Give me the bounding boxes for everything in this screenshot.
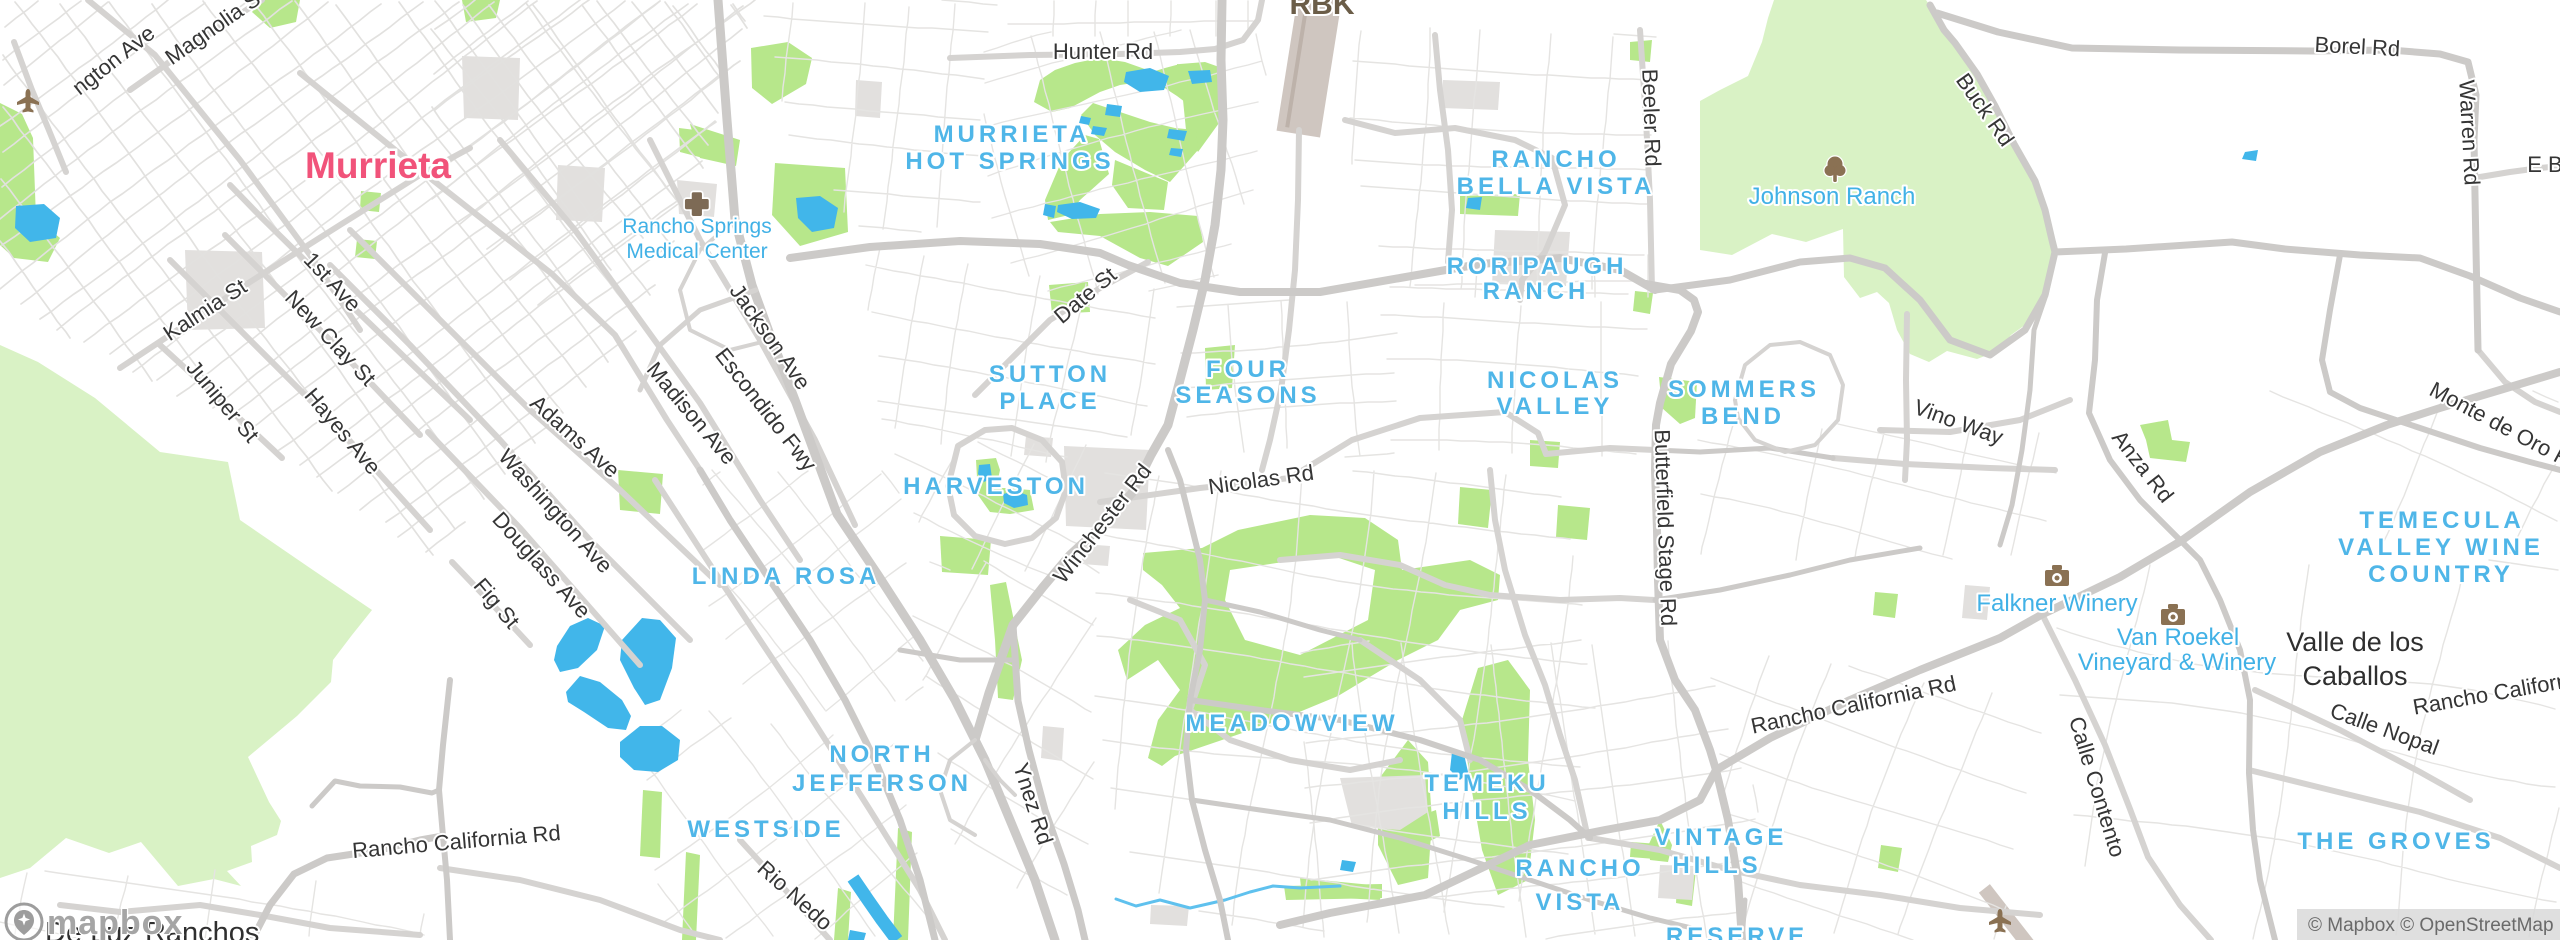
svg-text:TEMEKU: TEMEKU	[1424, 770, 1549, 797]
svg-text:VALLEY: VALLEY	[1497, 393, 1614, 420]
svg-text:SUTTON: SUTTON	[989, 361, 1111, 388]
svg-text:RANCHO: RANCHO	[1491, 146, 1620, 173]
svg-text:RANCHO: RANCHO	[1515, 855, 1644, 882]
svg-text:VALLEY WINE: VALLEY WINE	[2338, 534, 2544, 561]
svg-text:MURRIETA: MURRIETA	[934, 121, 1091, 148]
svg-text:NORTH: NORTH	[829, 741, 934, 768]
svg-text:SOMMERS: SOMMERS	[1668, 376, 1820, 403]
svg-text:HILLS: HILLS	[1442, 798, 1531, 825]
svg-text:Beeler Rd: Beeler Rd	[1637, 68, 1665, 167]
svg-text:Johnson Ranch: Johnson Ranch	[1749, 183, 1916, 210]
svg-text:Borel Rd: Borel Rd	[2314, 32, 2401, 61]
svg-text:NICOLAS: NICOLAS	[1487, 367, 1623, 394]
svg-text:THE GROVES: THE GROVES	[2297, 828, 2494, 855]
svg-text:BELLA VISTA: BELLA VISTA	[1457, 173, 1656, 200]
svg-text:COUNTRY: COUNTRY	[2368, 561, 2514, 588]
svg-text:Valle de los: Valle de los	[2286, 627, 2424, 657]
svg-text:PLACE: PLACE	[999, 388, 1100, 415]
svg-text:HOT SPRINGS: HOT SPRINGS	[905, 148, 1114, 175]
svg-text:JEFFERSON: JEFFERSON	[792, 770, 972, 797]
svg-text:VISTA: VISTA	[1536, 889, 1625, 916]
svg-text:© Mapbox © OpenStreetMap: © Mapbox © OpenStreetMap	[2308, 915, 2554, 936]
svg-text:TEMECULA: TEMECULA	[2359, 507, 2524, 534]
svg-text:SEASONS: SEASONS	[1175, 382, 1320, 409]
svg-text:HILLS: HILLS	[1672, 852, 1761, 879]
svg-text:Hunter Rd: Hunter Rd	[1053, 39, 1153, 64]
svg-text:RESERVE: RESERVE	[1666, 923, 1808, 940]
svg-text:mapbox: mapbox	[47, 904, 183, 940]
svg-text:FOUR: FOUR	[1206, 356, 1290, 383]
svg-text:Caballos: Caballos	[2302, 661, 2407, 691]
svg-text:VINTAGE: VINTAGE	[1655, 824, 1788, 851]
svg-text:Falkner Winery: Falkner Winery	[1976, 590, 2137, 617]
svg-text:WESTSIDE: WESTSIDE	[687, 816, 844, 843]
svg-text:RORIPAUGH: RORIPAUGH	[1447, 253, 1628, 280]
svg-text:Murrieta: Murrieta	[305, 145, 451, 186]
svg-text:BEND: BEND	[1701, 403, 1785, 430]
svg-text:Medical Center: Medical Center	[626, 240, 767, 263]
svg-text:Rancho Springs: Rancho Springs	[622, 215, 771, 238]
svg-text:Vineyard & Winery: Vineyard & Winery	[2078, 649, 2276, 676]
svg-text:E B: E B	[2527, 152, 2560, 177]
svg-text:RANCH: RANCH	[1483, 278, 1590, 305]
svg-text:HARVESTON: HARVESTON	[903, 473, 1089, 500]
svg-text:LINDA ROSA: LINDA ROSA	[692, 563, 880, 590]
svg-text:Van Roekel: Van Roekel	[2117, 624, 2239, 651]
svg-text:MEADOWVIEW: MEADOWVIEW	[1185, 710, 1398, 737]
svg-text:RBK: RBK	[1290, 0, 1355, 21]
